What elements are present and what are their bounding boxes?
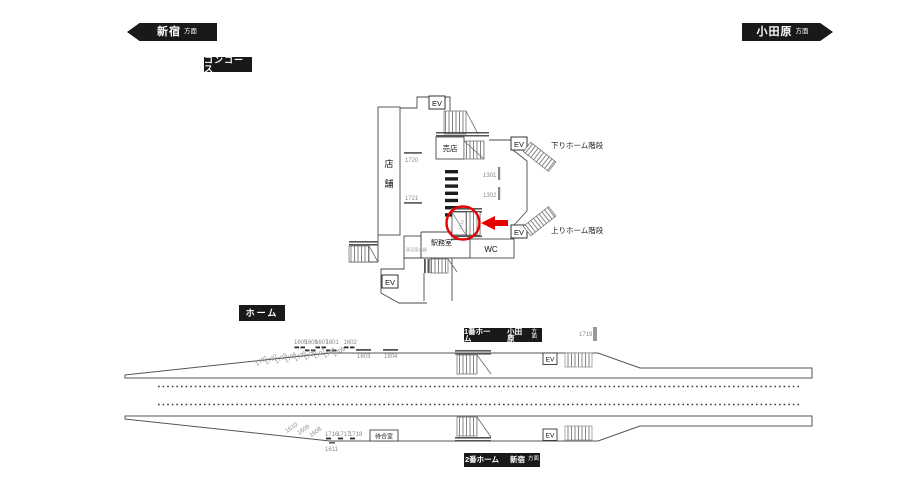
- ad-number-1302: 1302: [483, 193, 497, 199]
- wc-label: WC: [484, 245, 498, 254]
- platform1-stairs-icon: [457, 355, 477, 374]
- stairs-down-label: 下りホーム階段: [551, 140, 604, 150]
- direction-name: 新宿: [157, 27, 181, 38]
- platform1-stairs2-icon: [565, 353, 592, 367]
- platform1-dest: 小田原: [507, 328, 528, 343]
- direction-badge-odawara: 小田原 方面: [742, 23, 833, 41]
- section-label-platform: ホーム: [239, 305, 285, 321]
- ad-number-1720: 1720: [405, 158, 419, 164]
- svg-text:1601: 1601: [326, 340, 340, 346]
- store-room: [378, 107, 400, 235]
- platform1-number-1719: 1719: [579, 332, 593, 338]
- ad-number-1301: 1301: [483, 173, 497, 179]
- platform2-ticks: [326, 438, 355, 440]
- section-label-concourse: コンコース: [204, 57, 252, 72]
- platform2-stairs-icon: [457, 417, 477, 436]
- direction-badge-shinjuku: 新宿 方面: [127, 23, 217, 41]
- elevator-lower-label: EV: [385, 278, 395, 287]
- svg-text:1602: 1602: [344, 340, 358, 346]
- highlight-arrow-icon: [481, 216, 508, 230]
- elevator-right-bottom-label: EV: [514, 228, 524, 237]
- info-sign-label: 周辺案内図: [406, 246, 427, 253]
- office-label: 駅務室: [431, 238, 452, 247]
- platform1-number-1604: 1604: [384, 354, 398, 360]
- station-map-canvas: EV 売店 店 舗 1720 1721 1301 1302 EV 下りホーム階段…: [0, 0, 919, 491]
- store-label-char2: 舗: [384, 178, 393, 189]
- waiting-room-label: 待合室: [375, 433, 393, 441]
- svg-text:1718: 1718: [349, 432, 363, 438]
- platform2-stairs2-icon: [565, 426, 592, 440]
- platform2-dest: 新宿: [510, 456, 525, 464]
- platform2-number-1611: 1611: [325, 447, 339, 453]
- elevator-top-label: EV: [432, 99, 442, 108]
- platform1-suffix: 方面: [532, 330, 542, 341]
- station-diagram: EV 売店 店 舗 1720 1721 1301 1302 EV 下りホーム階段…: [0, 0, 919, 491]
- platform1-elevator-label: EV: [546, 357, 555, 364]
- platform2-elevator-label: EV: [546, 433, 555, 440]
- stairs-up-label: 上りホーム階段: [551, 225, 604, 235]
- kiosk-label: 売店: [443, 143, 458, 153]
- elevator-right-top-label: EV: [514, 140, 524, 149]
- stairs-top-icon: [444, 111, 466, 134]
- direction-suffix: 方面: [184, 29, 197, 36]
- platform2-flat-numbers: 1716 1717 1718: [325, 432, 363, 438]
- ad-number-1721: 1721: [405, 196, 419, 202]
- platform1-number-1603: 1603: [357, 354, 371, 360]
- platform2-suffix: 方面: [528, 457, 539, 463]
- direction-name: 小田原: [757, 27, 793, 38]
- stairs-lower-center-icon: [430, 259, 448, 273]
- platform1-badge: 1番ホーム 小田原 方面: [464, 328, 542, 342]
- platform2-badge: 2番ホーム 新宿 方面: [464, 453, 540, 467]
- platform2-name: 2番ホーム: [465, 456, 499, 464]
- platform1-name: 1番ホーム: [464, 328, 496, 343]
- direction-suffix: 方面: [796, 29, 809, 36]
- stairs-lower-left-icon: [349, 246, 369, 262]
- store-label-char1: 店: [384, 158, 393, 169]
- platform1-top-numbers: 1605 1606 1607 1601 1602: [294, 340, 358, 346]
